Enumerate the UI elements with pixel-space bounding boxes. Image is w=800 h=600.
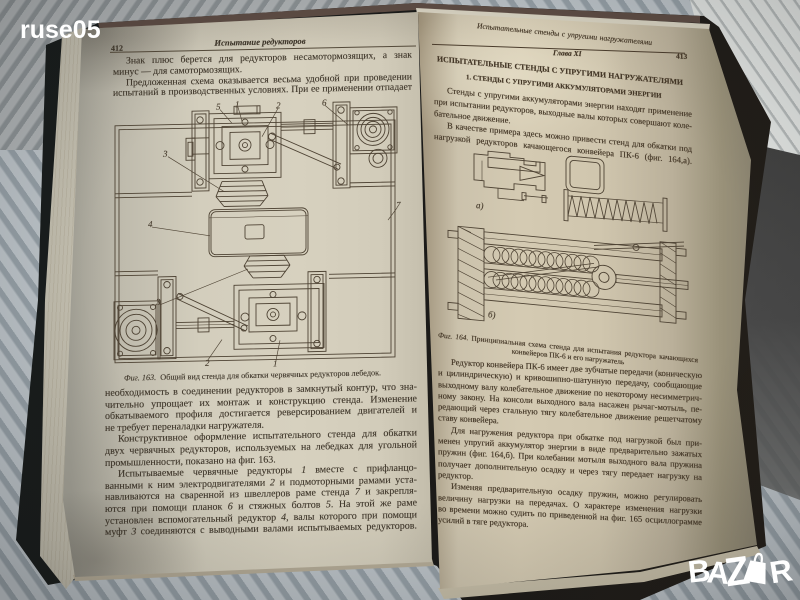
svg-text:R: R [767,552,795,590]
